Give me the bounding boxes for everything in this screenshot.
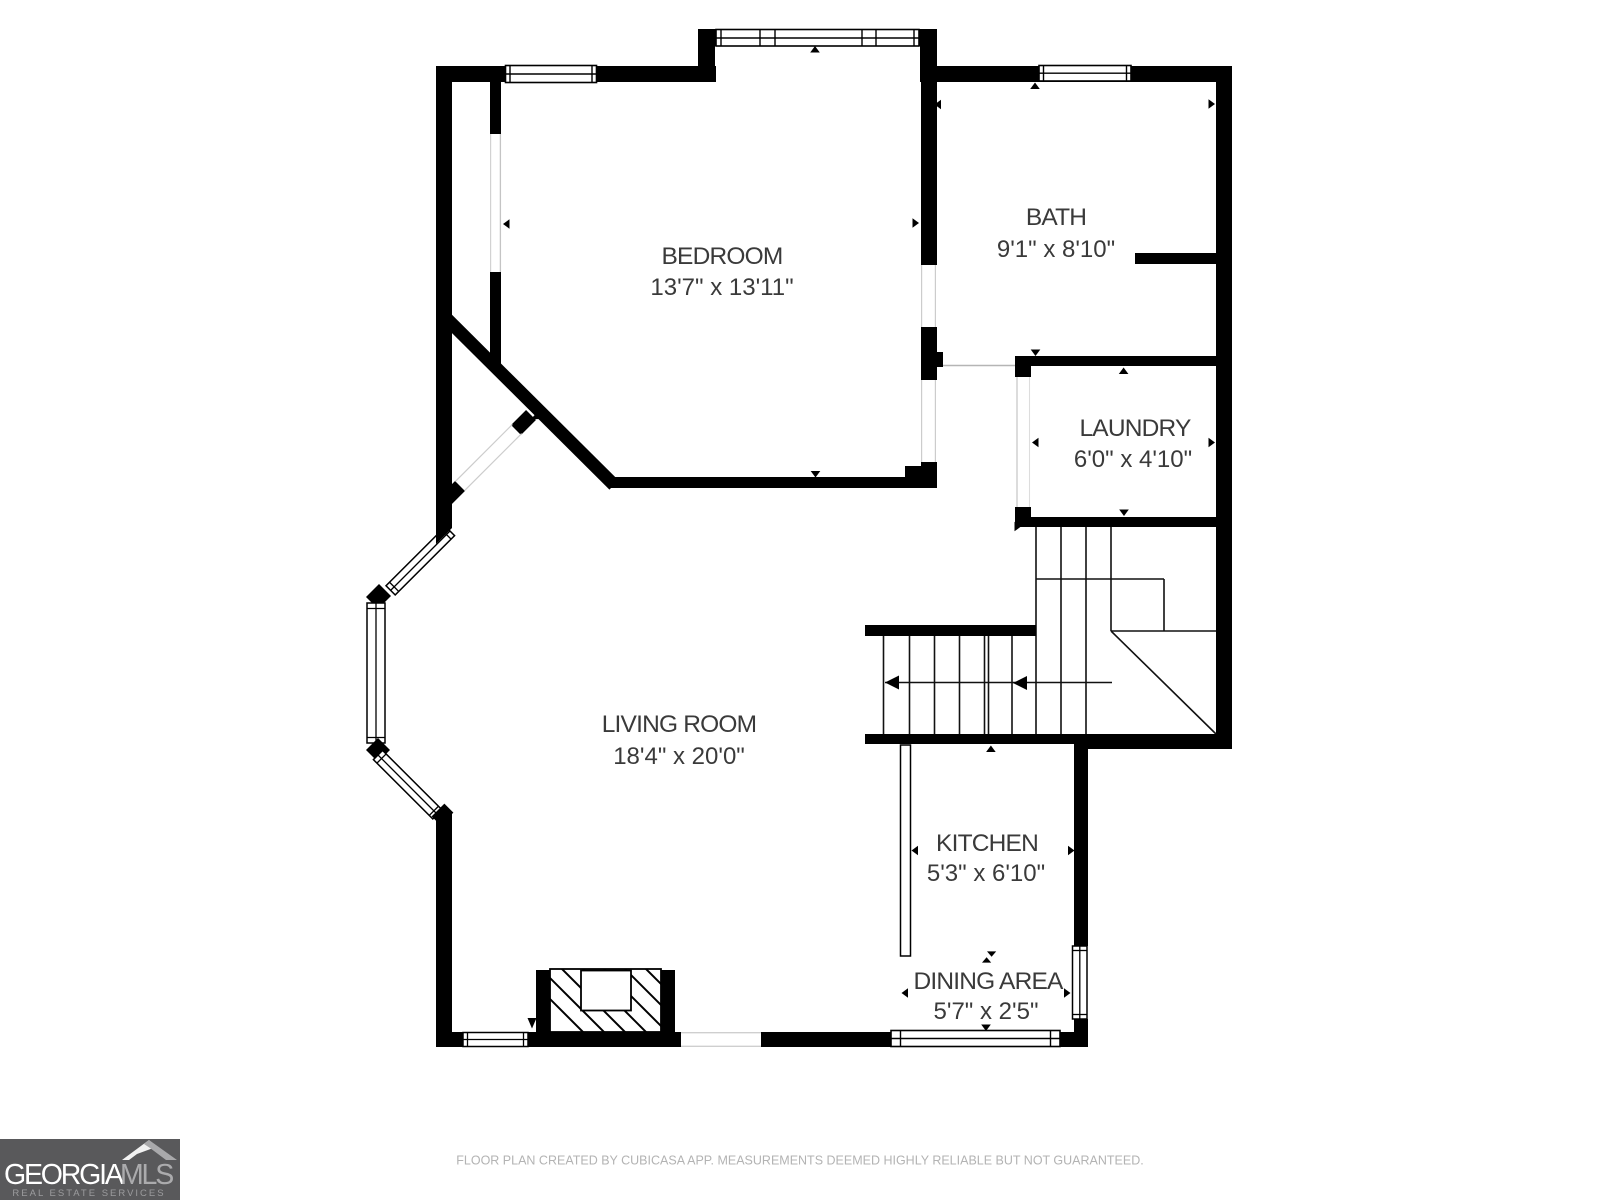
svg-text:MLS: MLS — [120, 1159, 173, 1191]
svg-text:KITCHEN: KITCHEN — [936, 830, 1038, 857]
svg-text:9'1" x 8'10": 9'1" x 8'10" — [997, 236, 1115, 263]
svg-text:BEDROOM: BEDROOM — [662, 243, 783, 270]
svg-text:LIVING ROOM: LIVING ROOM — [602, 711, 757, 738]
svg-text:LAUNDRY: LAUNDRY — [1079, 415, 1190, 442]
svg-text:REAL ESTATE SERVICES: REAL ESTATE SERVICES — [12, 1188, 165, 1199]
svg-text:5'3" x 6'10": 5'3" x 6'10" — [927, 860, 1045, 887]
svg-text:GEORGIA: GEORGIA — [4, 1159, 124, 1191]
svg-text:13'7" x 13'11": 13'7" x 13'11" — [650, 274, 793, 301]
svg-text:FLOOR PLAN CREATED BY CUBICASA: FLOOR PLAN CREATED BY CUBICASA APP. MEAS… — [456, 1154, 1143, 1168]
svg-text:5'7" x 2'5": 5'7" x 2'5" — [934, 998, 1039, 1025]
svg-text:DINING AREA: DINING AREA — [913, 968, 1064, 995]
svg-text:BATH: BATH — [1026, 204, 1086, 231]
svg-text:18'4" x 20'0": 18'4" x 20'0" — [613, 743, 745, 770]
svg-text:6'0" x 4'10": 6'0" x 4'10" — [1074, 446, 1192, 473]
